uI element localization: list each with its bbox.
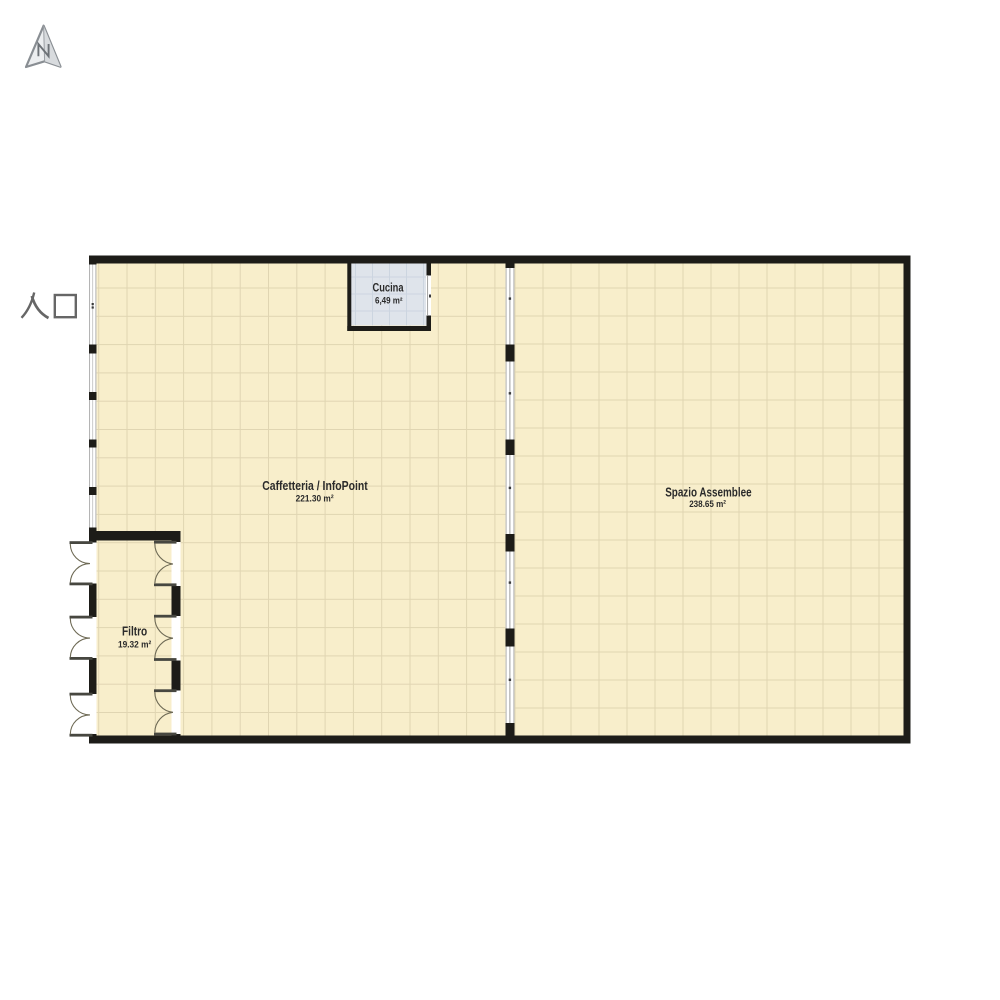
svg-text:Spazio Assemblee: Spazio Assemblee	[665, 485, 751, 499]
svg-text:238.65 m²: 238.65 m²	[689, 499, 726, 510]
svg-text:Filtro: Filtro	[122, 624, 147, 638]
svg-text:221.30 m²: 221.30 m²	[296, 494, 334, 505]
svg-text:Caffetteria / InfoPoint: Caffetteria / InfoPoint	[262, 479, 368, 493]
svg-text:19.32 m²: 19.32 m²	[118, 639, 151, 650]
svg-text:6,49 m²: 6,49 m²	[375, 296, 403, 306]
svg-text:Cucina: Cucina	[373, 283, 404, 295]
